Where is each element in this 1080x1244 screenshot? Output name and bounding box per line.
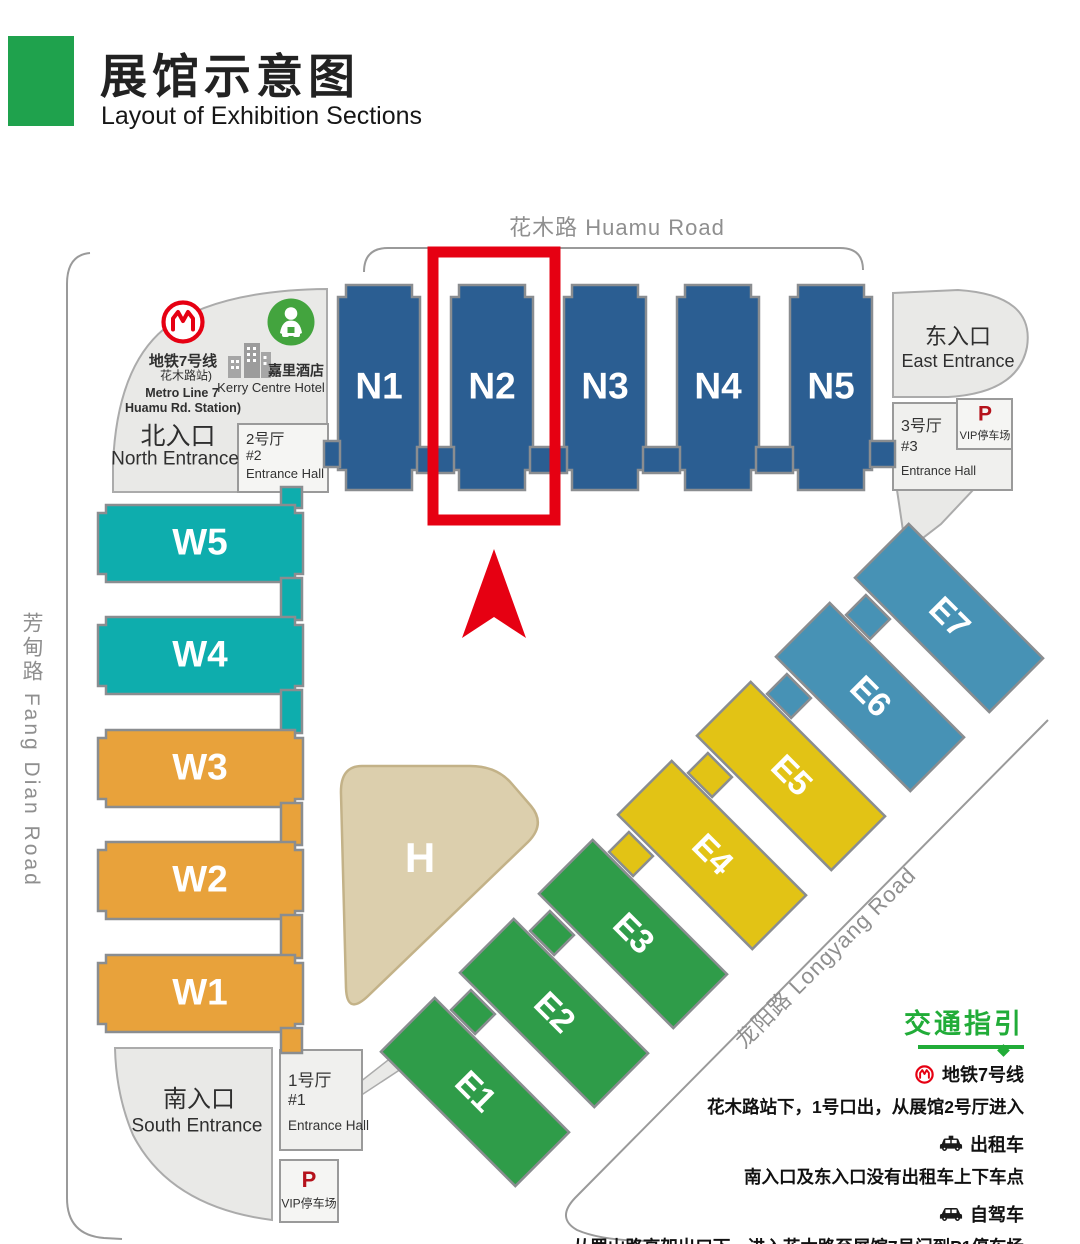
hall-h-label: H [405, 835, 435, 881]
hall-n2-label: N2 [468, 367, 515, 408]
guide-metro-label: 地铁7号线 [942, 1061, 1024, 1087]
hotel-en-label: Kerry Centre Hotel [217, 381, 325, 395]
hall-w2-label: W2 [172, 860, 228, 901]
hall1-cn-label: 1号厅 [288, 1066, 331, 1091]
w1-south-connector [281, 1028, 302, 1053]
hall-w3-label: W3 [172, 748, 228, 789]
car-icon [939, 1204, 963, 1224]
north-entrance-en-label: North Entrance [111, 450, 239, 471]
guide-title-underline [918, 1045, 1024, 1049]
metro-station-cn-label: 花木路站) [160, 369, 212, 382]
parking-p-east-icon: P [978, 402, 992, 425]
guide-taxi-desc: 南入口及东入口没有出租车上下车点 [544, 1164, 1024, 1189]
vip-parking-east-label: VIP停车场 [960, 430, 1011, 442]
east-entrance-cn-label: 东入口 [925, 325, 991, 349]
hotel-cn-label: 嘉里酒店 [268, 363, 324, 378]
guide-metro-desc: 花木路站下，1号口出，从展馆2号厅进入 [544, 1094, 1024, 1119]
hall-w5-label: W5 [172, 523, 228, 564]
metro-logo-icon [164, 303, 203, 342]
hall2-en-label: Entrance Hall [246, 466, 324, 481]
north-entrance-cn-label: 北入口 [140, 423, 215, 451]
metro-station-en-label: Huamu Rd. Station) [125, 402, 241, 416]
guide-metro-row: 地铁7号线 [544, 1061, 1024, 1087]
metro-line-en-label: Metro Line 7 [145, 387, 219, 401]
hall-n1-label: N1 [355, 367, 402, 408]
parking-p-south-icon: P [302, 1168, 317, 1192]
n2-n3-connector [530, 447, 567, 473]
hotel-icon [268, 299, 315, 346]
n2-pointer-arrow-icon [462, 549, 526, 638]
n3-n4-connector [643, 447, 680, 473]
hall2-cn-label: 2号厅 [246, 428, 284, 449]
hall3-cn-label: 3号厅 [901, 412, 942, 436]
south-entrance-cn-label: 南入口 [163, 1087, 235, 1113]
guide-taxi-row: 出租车 [544, 1131, 1024, 1157]
w4-w3-connector [281, 690, 302, 733]
guide-taxi-label: 出租车 [970, 1131, 1024, 1157]
huamu-road-label: 花木路 Huamu Road [509, 216, 725, 240]
guide-title: 交通指引 [904, 1002, 1024, 1041]
traffic-guide-panel: 交通指引 地铁7号线 花木路站下，1号口出，从展馆2号厅进入 出租车 南入口及东… [544, 1002, 1024, 1244]
fangdian-road-label: 芳甸路 Fang Dian Road [16, 612, 46, 888]
n5-hall3-connector [870, 441, 895, 467]
hall3-en-label: Entrance Hall [901, 464, 976, 478]
hall-w4-label: W4 [172, 635, 228, 676]
hall-n4-label: N4 [694, 367, 741, 408]
hall1-en-label: Entrance Hall [288, 1118, 369, 1133]
hall2-n1-connector [324, 441, 340, 467]
south-entrance-en-label: South Entrance [132, 1117, 263, 1138]
hall2-num-label: #2 [246, 447, 262, 463]
guide-car-row: 自驾车 [544, 1201, 1024, 1227]
w3-w2-connector [281, 803, 302, 845]
n4-n5-connector [756, 447, 793, 473]
exhibition-layout-map: 展馆示意图 Layout of Exhibition Sections [0, 0, 1080, 1244]
east-entrance-en-label: East Entrance [901, 352, 1014, 372]
hall1-num-label: #1 [288, 1092, 306, 1110]
metro-small-icon [914, 1064, 935, 1085]
guide-car-label: 自驾车 [970, 1201, 1024, 1227]
hall-n3-label: N3 [581, 367, 628, 408]
hall3-num-label: #3 [901, 438, 918, 455]
w2-w1-connector [281, 915, 302, 958]
guide-underline-notch [997, 1044, 1010, 1057]
hall-w1-label: W1 [172, 973, 228, 1014]
hall-n5-label: N5 [807, 367, 854, 408]
vip-parking-south-label: VIP停车场 [281, 1197, 336, 1210]
taxi-icon [939, 1134, 963, 1154]
guide-car-desc: 从罗山路高架出口下，进入花木路至展馆7号门到P1停车场 [544, 1234, 1024, 1244]
w5-w4-connector [281, 578, 302, 620]
